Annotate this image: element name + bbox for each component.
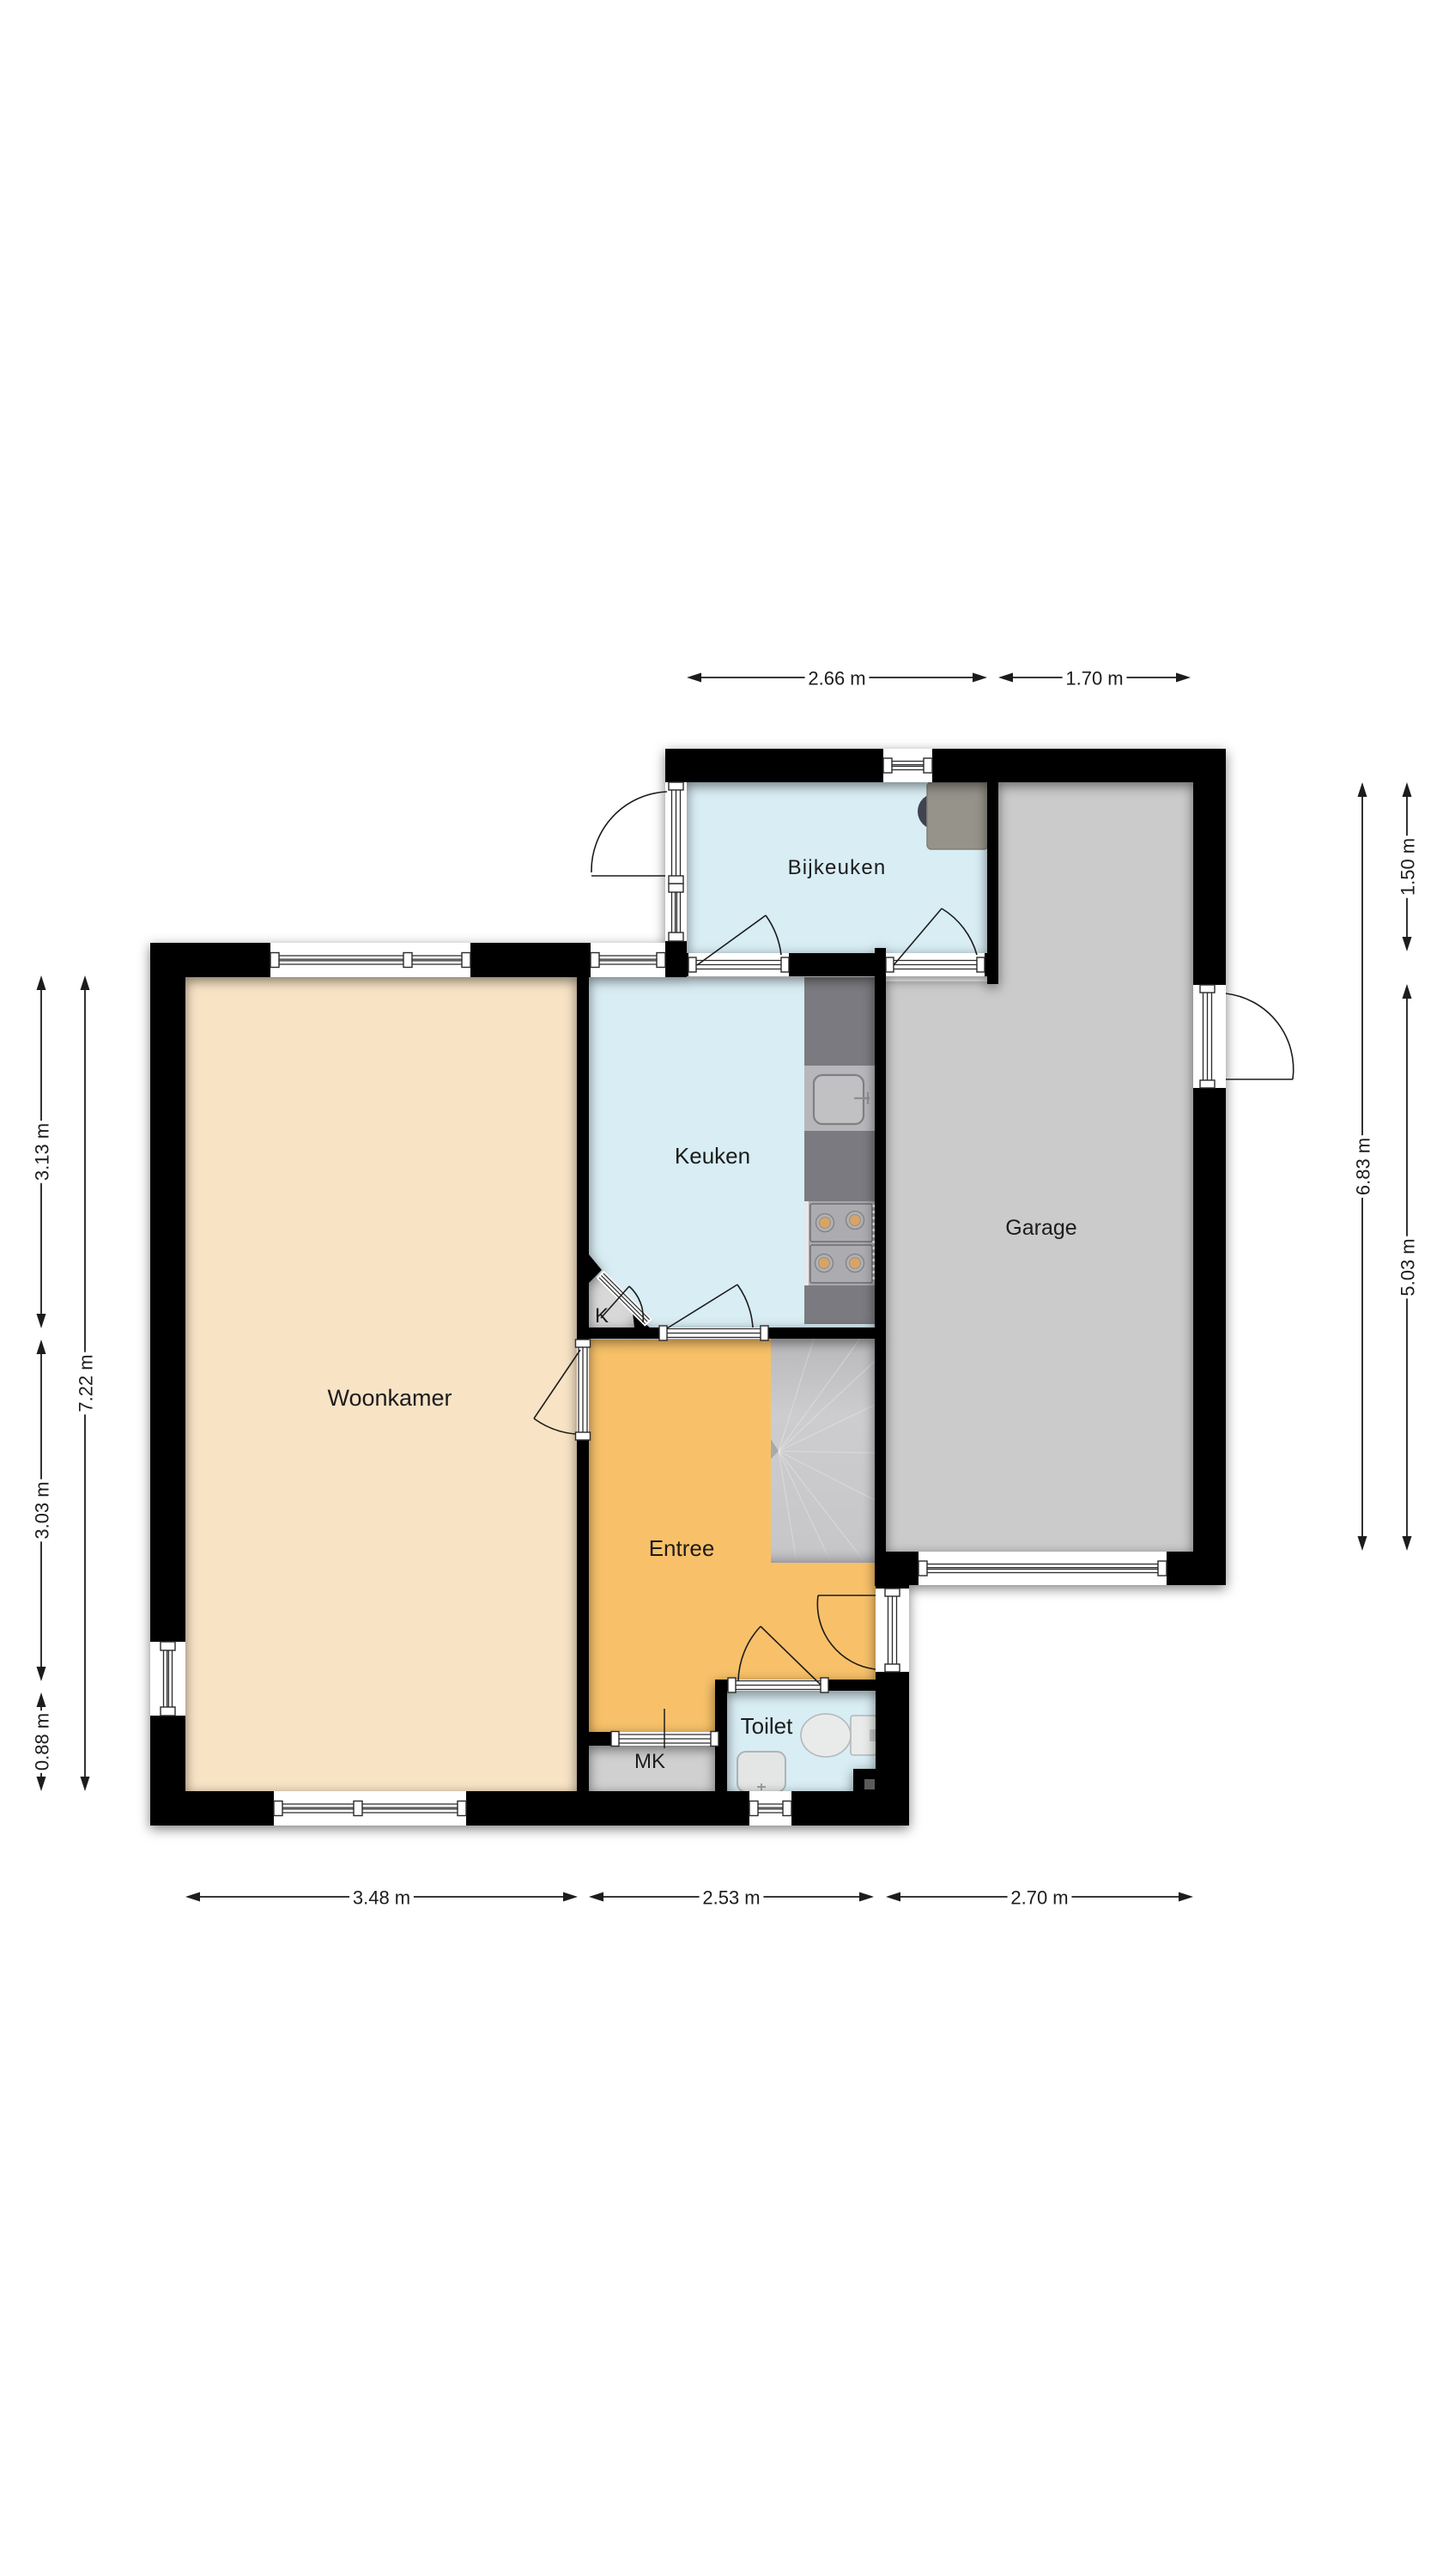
svg-text:Bijkeuken: Bijkeuken — [788, 856, 887, 879]
svg-text:2.70 m: 2.70 m — [1010, 1887, 1068, 1909]
svg-text:3.48 m: 3.48 m — [353, 1887, 410, 1909]
svg-text:1.70 m: 1.70 m — [1065, 668, 1123, 690]
svg-text:7.22 m: 7.22 m — [76, 1354, 97, 1412]
svg-text:6.83 m: 6.83 m — [1353, 1138, 1374, 1195]
svg-text:Entree: Entree — [649, 1535, 715, 1561]
svg-text:Keuken: Keuken — [675, 1143, 750, 1169]
svg-text:Woonkamer: Woonkamer — [327, 1385, 452, 1411]
svg-text:K: K — [595, 1304, 609, 1327]
svg-text:1.50 m: 1.50 m — [1397, 838, 1419, 896]
svg-text:MK: MK — [634, 1750, 665, 1773]
svg-text:Garage: Garage — [1005, 1216, 1076, 1240]
svg-text:2.53 m: 2.53 m — [702, 1887, 760, 1909]
svg-text:0.88 m: 0.88 m — [32, 1713, 53, 1771]
svg-text:3.13 m: 3.13 m — [32, 1123, 53, 1181]
svg-text:3.03 m: 3.03 m — [32, 1481, 53, 1539]
svg-text:Toilet: Toilet — [741, 1713, 793, 1739]
svg-text:5.03 m: 5.03 m — [1397, 1238, 1419, 1296]
svg-text:2.66 m: 2.66 m — [808, 668, 865, 690]
